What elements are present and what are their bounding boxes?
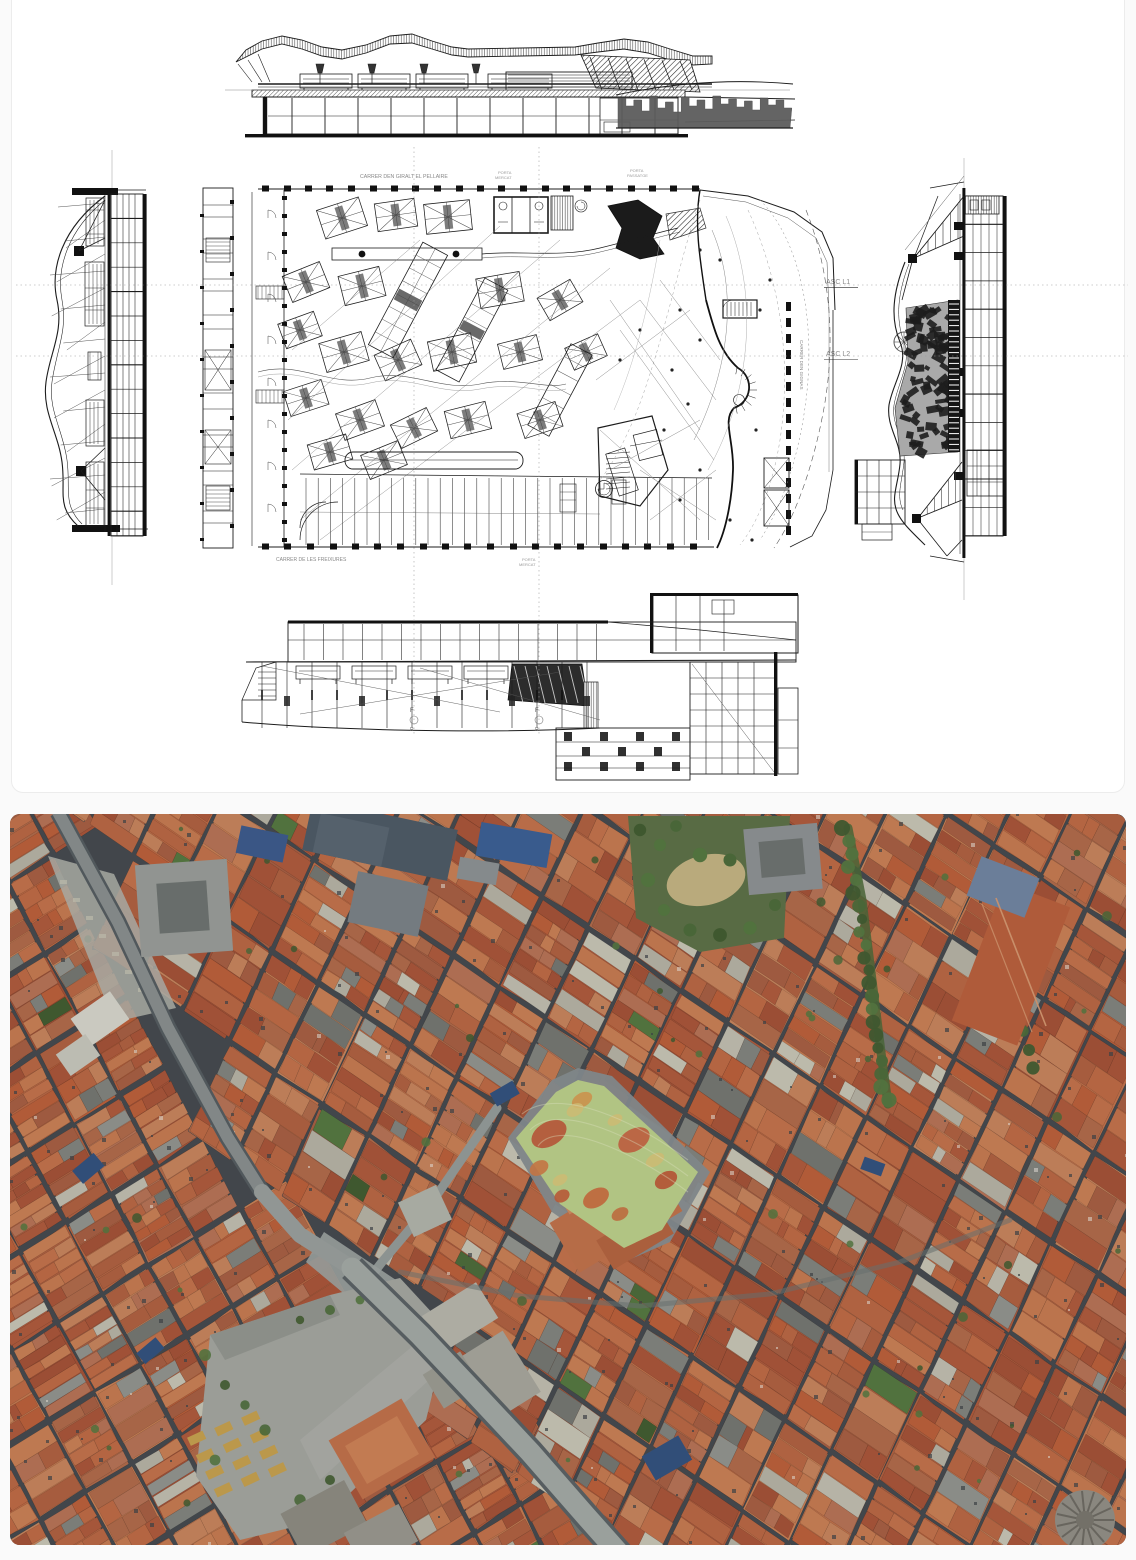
- svg-text:R: R: [535, 727, 539, 733]
- svg-text:F: F: [410, 708, 414, 714]
- svg-text:R: R: [410, 727, 414, 733]
- svg-text:MERCAT: MERCAT: [519, 562, 536, 567]
- svg-text:CARRER DEN GIGNAS: CARRER DEN GIGNAS: [799, 340, 804, 390]
- svg-text:ASC L1: ASC L1: [826, 279, 850, 286]
- svg-text:CARRER DE LES FREIXURES: CARRER DE LES FREIXURES: [276, 557, 347, 563]
- svg-text:PASSATGE: PASSATGE: [627, 173, 648, 178]
- svg-text:F: F: [535, 708, 539, 714]
- svg-text:MERCAT: MERCAT: [495, 175, 512, 180]
- svg-text:CARRER DEN GIRALT EL PELLAIRE: CARRER DEN GIRALT EL PELLAIRE: [360, 174, 448, 180]
